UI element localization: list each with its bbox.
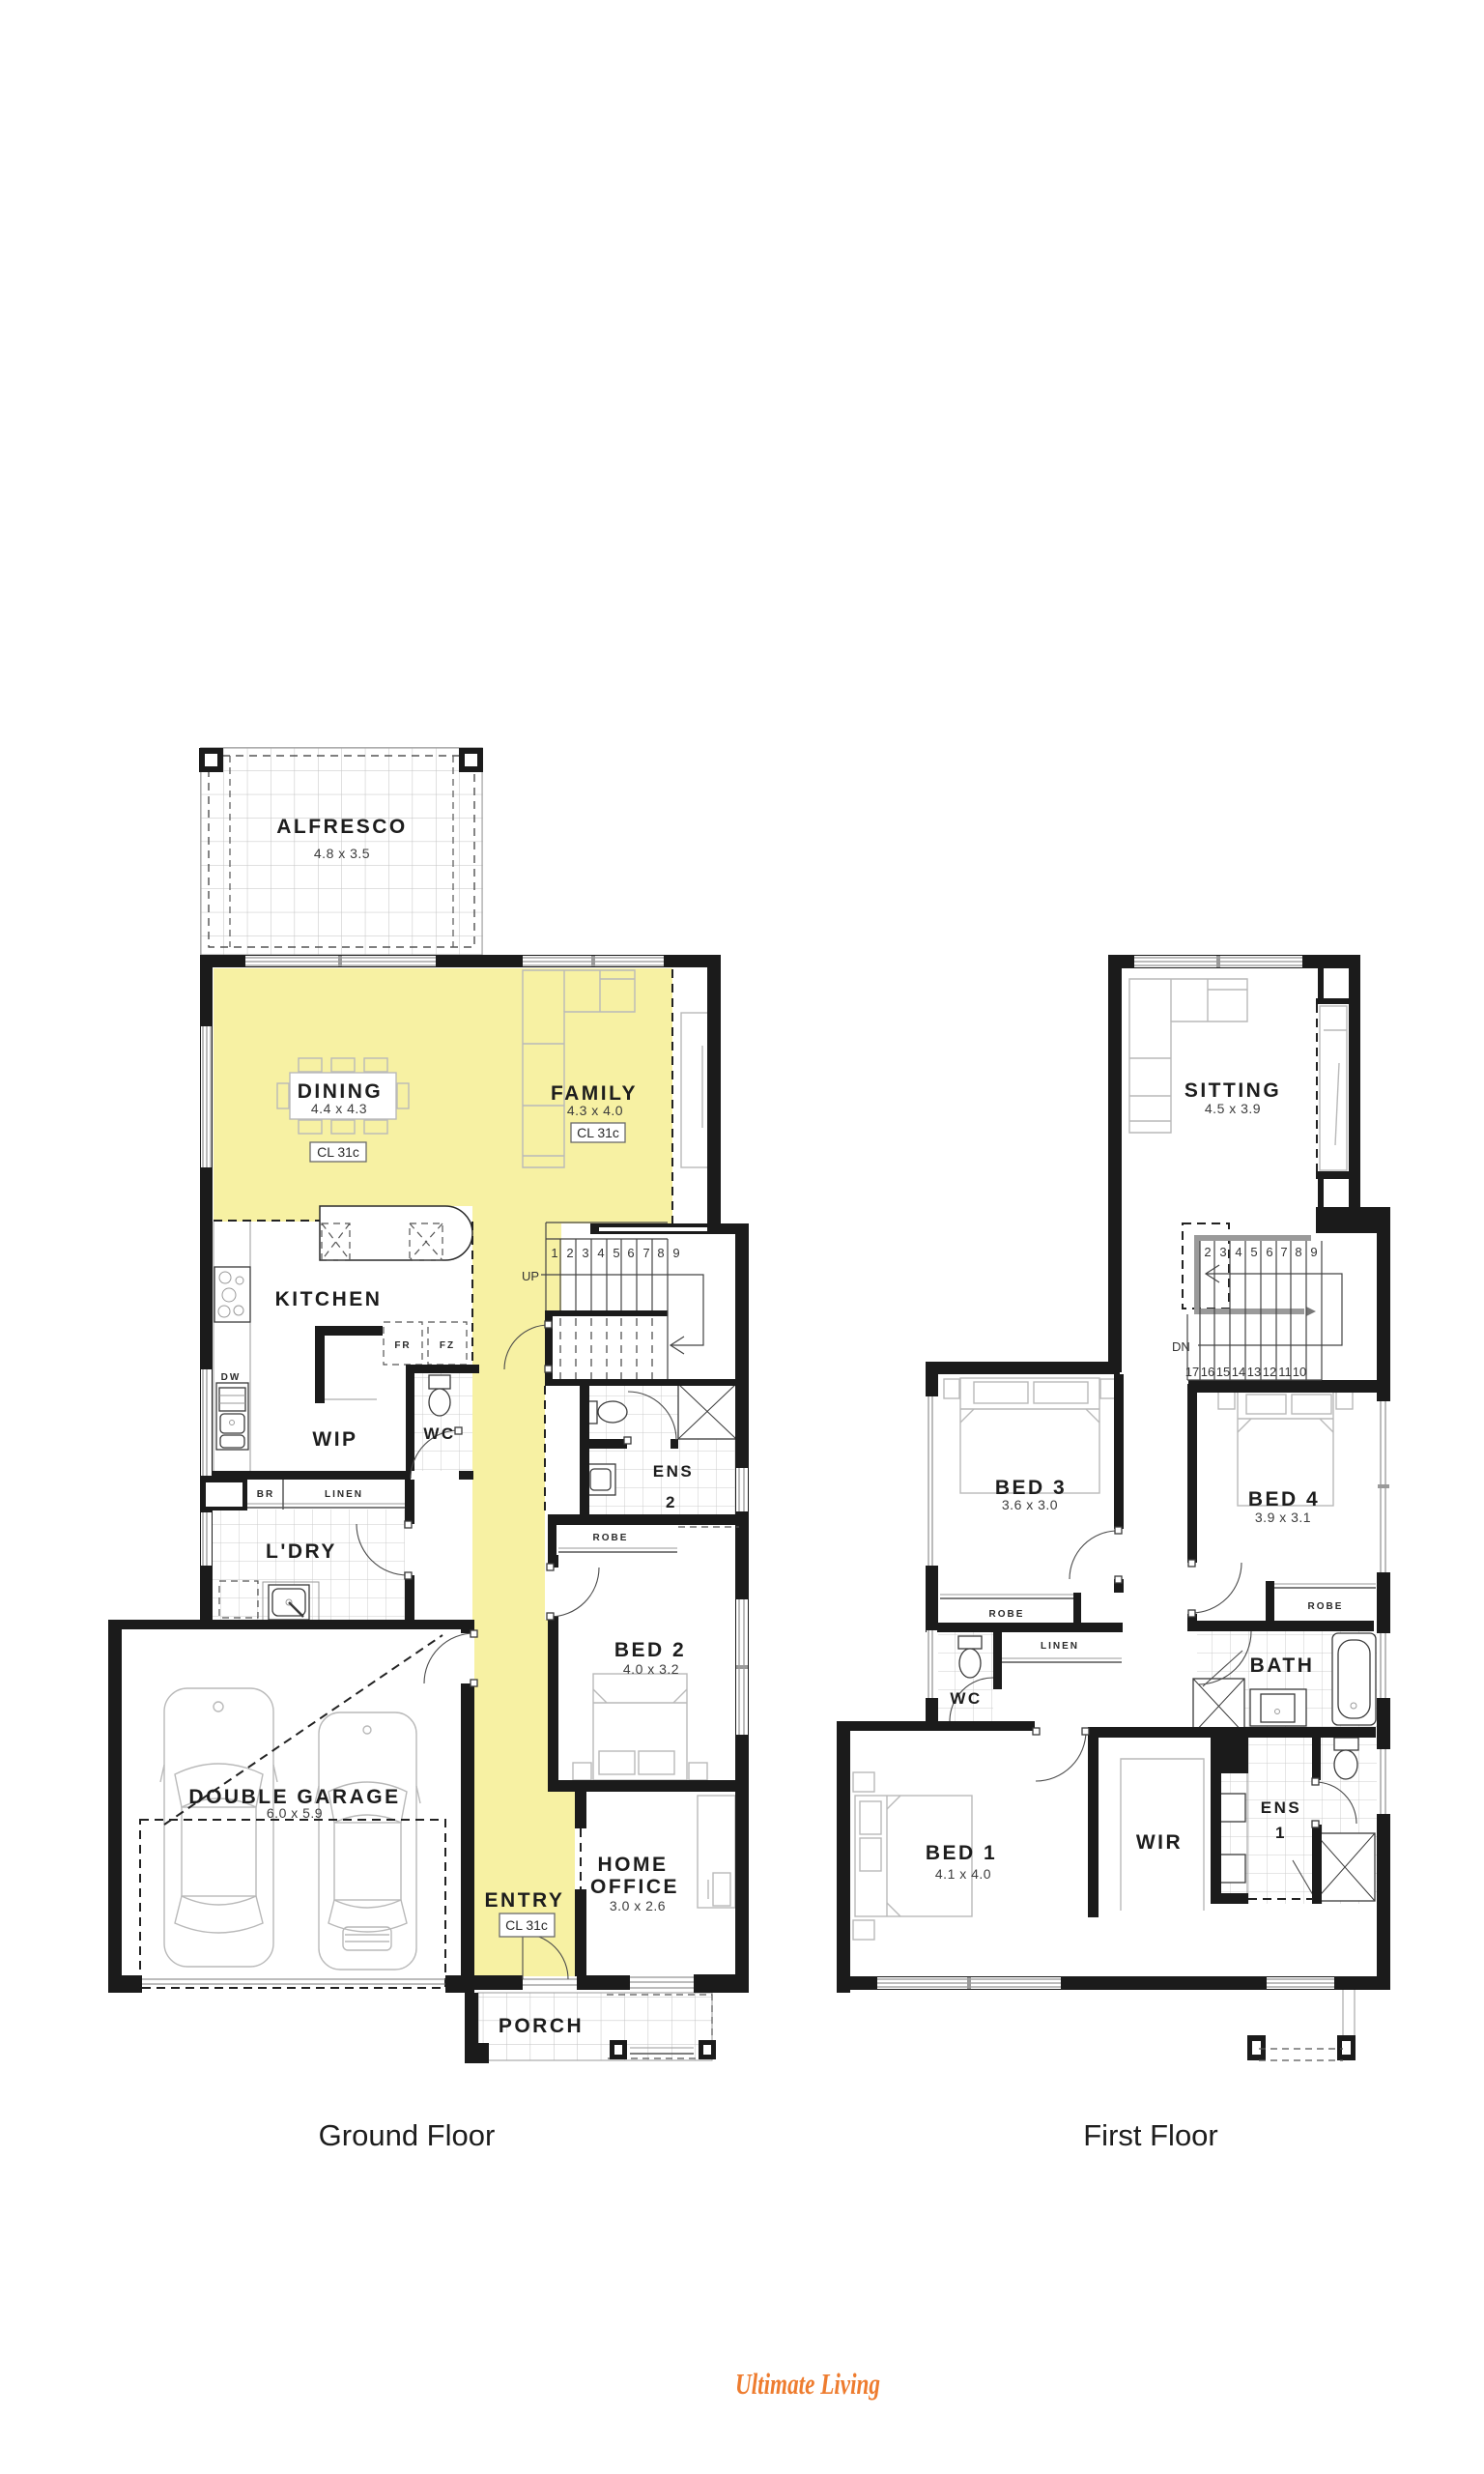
svg-text:4: 4 (1235, 1245, 1241, 1259)
svg-text:4.4 x 4.3: 4.4 x 4.3 (311, 1101, 367, 1116)
svg-text:8: 8 (1295, 1245, 1301, 1259)
svg-text:3: 3 (1219, 1245, 1226, 1259)
svg-text:6: 6 (1266, 1245, 1272, 1259)
svg-text:5: 5 (613, 1246, 619, 1260)
svg-text:ENTRY: ENTRY (485, 1889, 565, 1912)
svg-text:KITCHEN: KITCHEN (275, 1288, 383, 1310)
svg-text:WC: WC (950, 1689, 982, 1708)
svg-text:CL 31c: CL 31c (577, 1125, 619, 1140)
svg-text:17: 17 (1185, 1365, 1199, 1379)
svg-text:3: 3 (582, 1246, 588, 1260)
svg-text:5: 5 (1250, 1245, 1257, 1259)
svg-text:6: 6 (627, 1246, 634, 1260)
svg-text:4.1 x 4.0: 4.1 x 4.0 (935, 1866, 991, 1882)
svg-text:ROBE: ROBE (989, 1609, 1025, 1620)
svg-text:BR: BR (257, 1489, 274, 1500)
svg-text:9: 9 (1310, 1245, 1317, 1259)
svg-text:7: 7 (1280, 1245, 1287, 1259)
svg-text:BED 2: BED 2 (614, 1639, 686, 1661)
svg-text:4: 4 (597, 1246, 604, 1260)
svg-text:LINEN: LINEN (1041, 1641, 1079, 1652)
svg-text:DN: DN (1172, 1339, 1190, 1354)
svg-text:FAMILY: FAMILY (551, 1082, 638, 1105)
svg-text:2: 2 (666, 1493, 677, 1511)
svg-text:15: 15 (1216, 1365, 1230, 1379)
svg-text:7: 7 (642, 1246, 649, 1260)
svg-text:WIP: WIP (312, 1428, 357, 1451)
svg-text:8: 8 (657, 1246, 664, 1260)
svg-text:2: 2 (1204, 1245, 1211, 1259)
svg-text:11: 11 (1278, 1365, 1292, 1379)
svg-text:FR: FR (394, 1340, 411, 1351)
svg-text:WC: WC (423, 1424, 455, 1443)
svg-text:BATH: BATH (1250, 1654, 1315, 1677)
svg-text:CL 31c: CL 31c (505, 1917, 548, 1933)
svg-text:ALFRESCO: ALFRESCO (276, 816, 408, 838)
svg-text:Ground Floor: Ground Floor (319, 2118, 496, 2152)
svg-text:DW: DW (221, 1372, 242, 1383)
svg-text:3.9 x 3.1: 3.9 x 3.1 (1255, 1510, 1311, 1525)
svg-text:10: 10 (1293, 1365, 1306, 1379)
svg-text:ENS: ENS (653, 1462, 694, 1481)
svg-text:UP: UP (522, 1269, 539, 1283)
svg-text:16: 16 (1201, 1365, 1214, 1379)
svg-text:Ultimate Living: Ultimate Living (735, 2367, 880, 2401)
svg-text:OFFICE: OFFICE (590, 1876, 679, 1898)
svg-text:BED 1: BED 1 (926, 1842, 997, 1864)
svg-text:4.8 x 3.5: 4.8 x 3.5 (314, 846, 370, 861)
svg-text:BED 4: BED 4 (1248, 1488, 1320, 1510)
svg-text:L'DRY: L'DRY (266, 1540, 337, 1563)
svg-text:4.0 x 3.2: 4.0 x 3.2 (623, 1661, 679, 1677)
svg-text:14: 14 (1232, 1365, 1245, 1379)
svg-text:FZ: FZ (440, 1340, 455, 1351)
svg-text:1: 1 (551, 1246, 557, 1260)
svg-text:4.3 x 4.0: 4.3 x 4.0 (567, 1103, 623, 1118)
svg-text:ROBE: ROBE (1308, 1601, 1344, 1612)
svg-text:PORCH: PORCH (499, 2015, 584, 2037)
svg-text:First Floor: First Floor (1083, 2118, 1218, 2152)
svg-text:3.0 x 2.6: 3.0 x 2.6 (610, 1898, 666, 1913)
svg-text:CL 31c: CL 31c (317, 1144, 359, 1160)
svg-text:12: 12 (1263, 1365, 1276, 1379)
svg-text:1: 1 (1275, 1824, 1287, 1842)
svg-text:ENS: ENS (1261, 1798, 1301, 1817)
svg-text:BED 3: BED 3 (995, 1477, 1067, 1499)
svg-text:9: 9 (672, 1246, 679, 1260)
svg-text:3.6 x 3.0: 3.6 x 3.0 (1002, 1497, 1058, 1512)
svg-text:WIR: WIR (1136, 1831, 1183, 1854)
svg-text:DINING: DINING (298, 1080, 384, 1103)
svg-text:SITTING: SITTING (1184, 1079, 1281, 1102)
svg-text:LINEN: LINEN (325, 1489, 363, 1500)
svg-text:4.5 x 3.9: 4.5 x 3.9 (1205, 1101, 1261, 1116)
svg-text:ROBE: ROBE (593, 1533, 629, 1543)
svg-text:HOME: HOME (598, 1854, 669, 1876)
svg-text:13: 13 (1247, 1365, 1261, 1379)
svg-text:6.0 x 5.9: 6.0 x 5.9 (267, 1805, 323, 1821)
svg-text:2: 2 (566, 1246, 573, 1260)
